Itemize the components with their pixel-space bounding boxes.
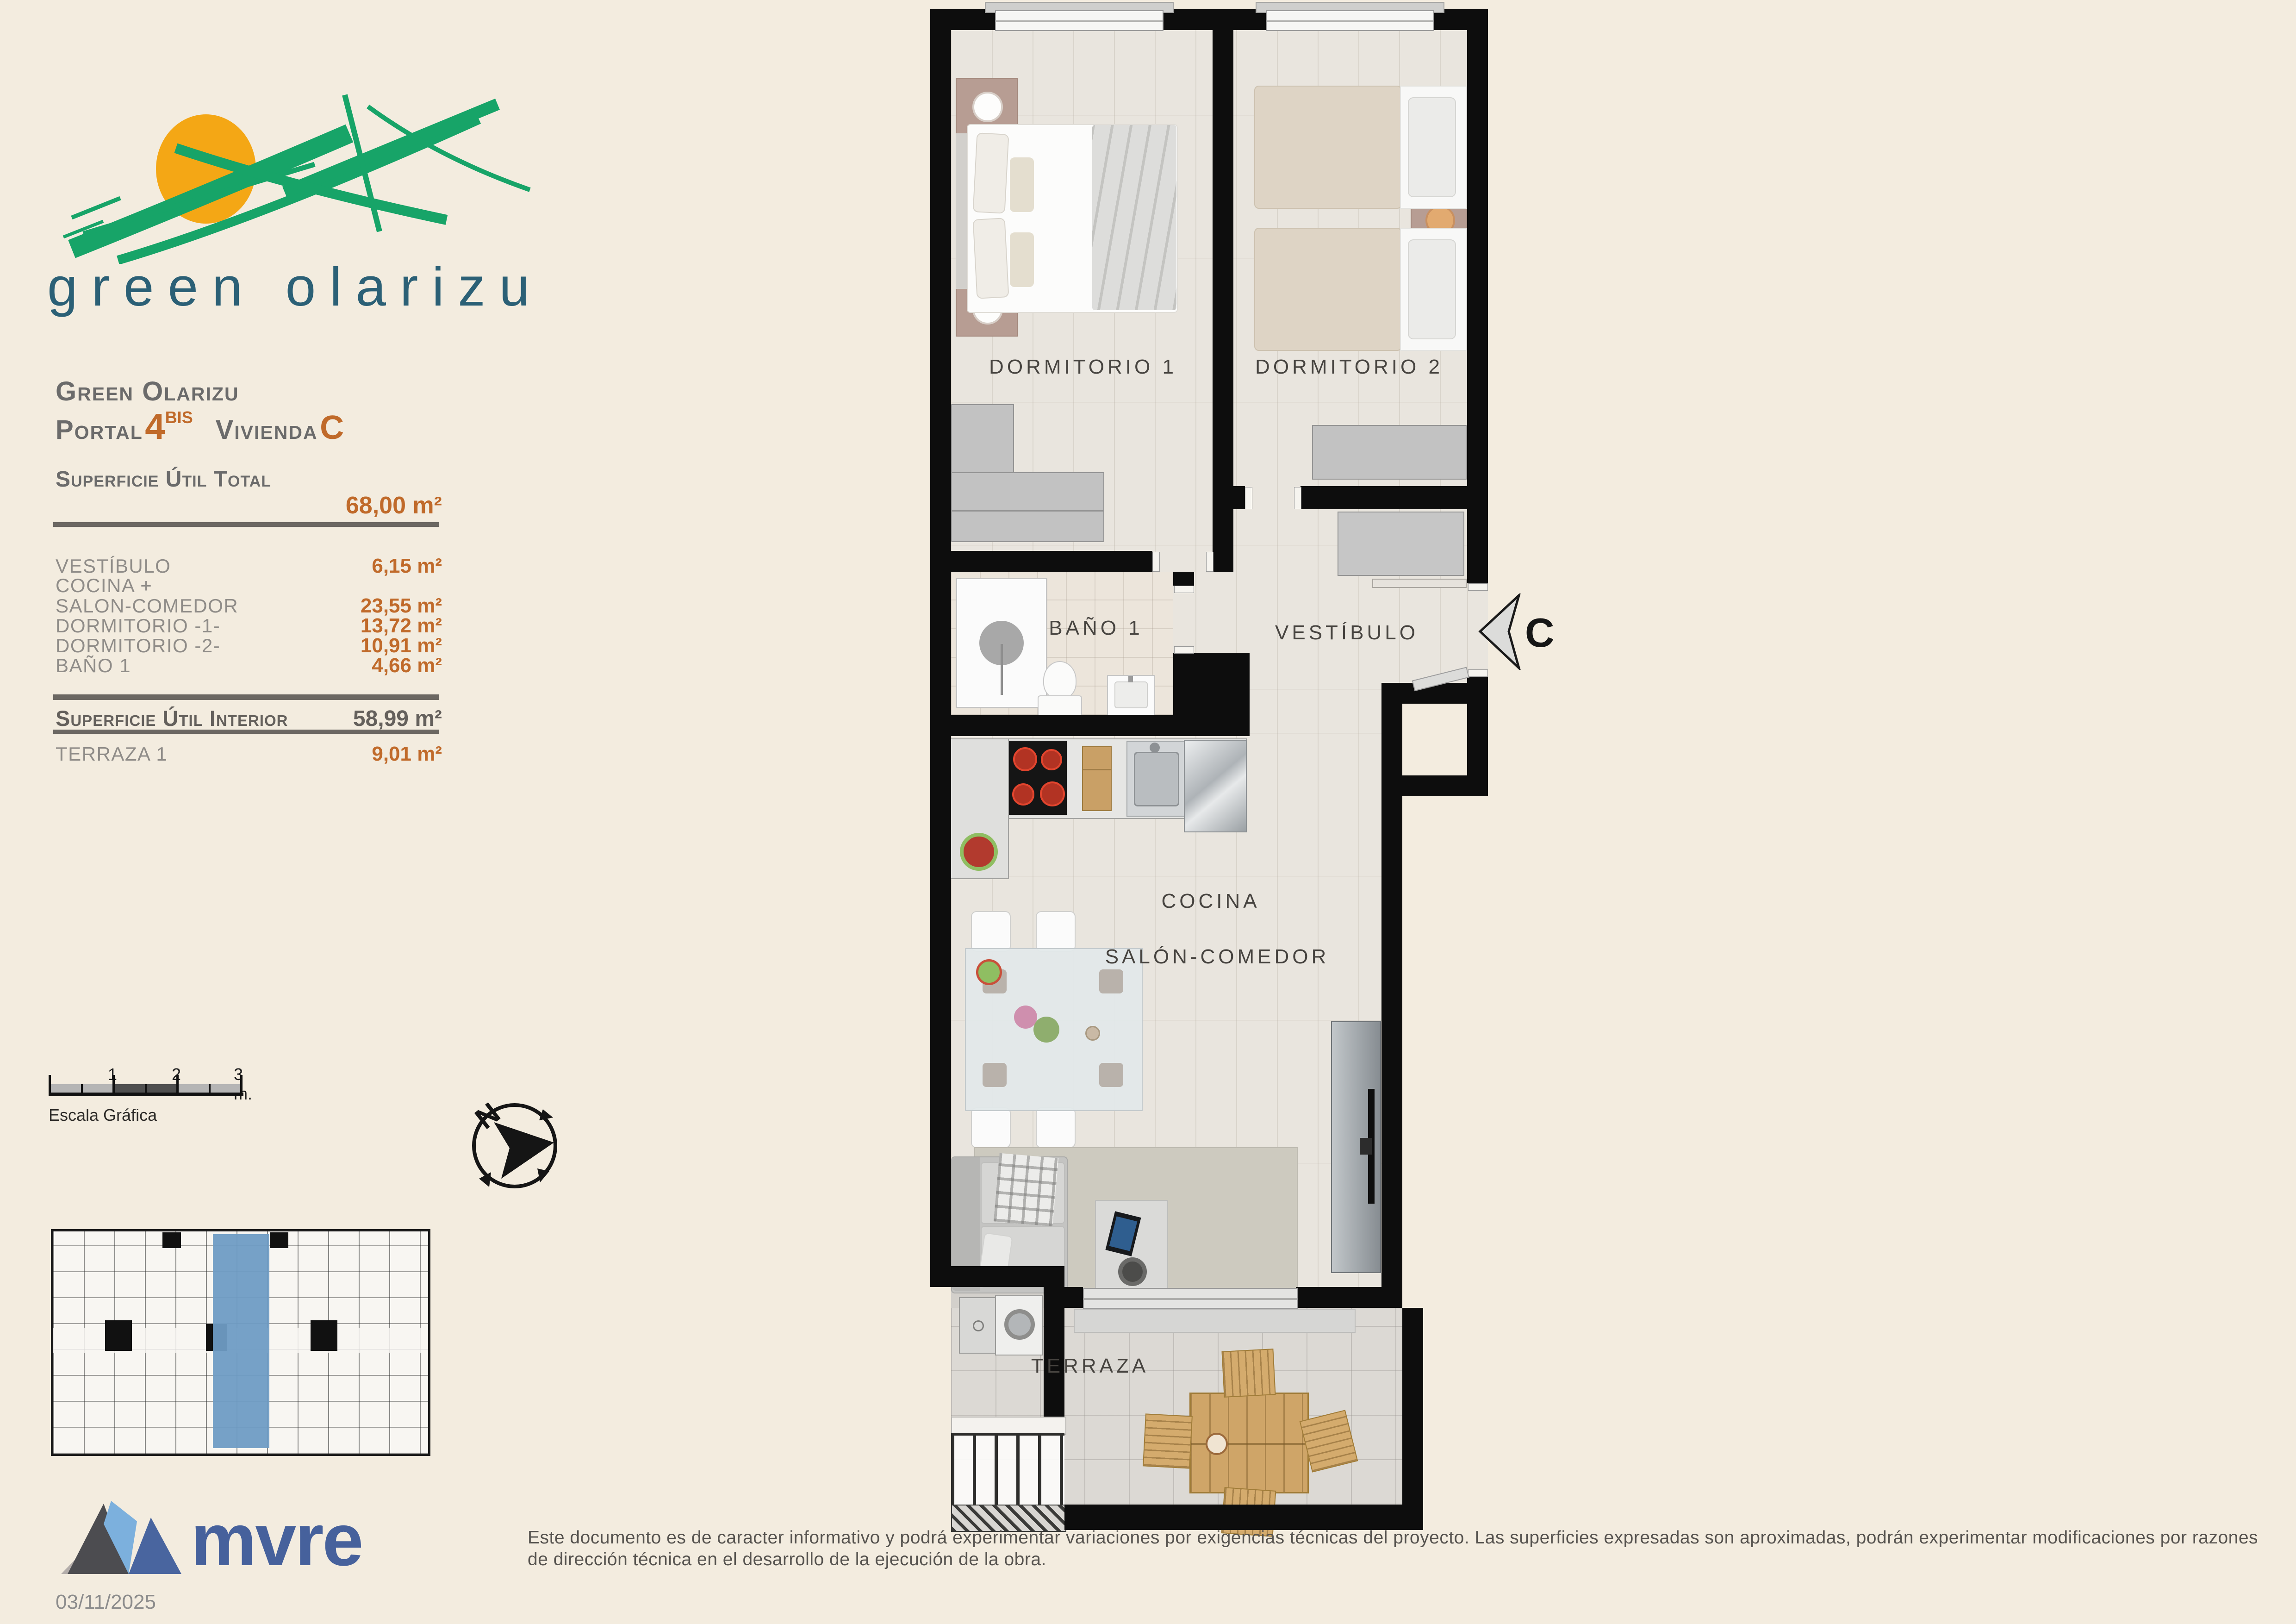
scale-tick [240, 1075, 243, 1093]
tablet [1105, 1211, 1141, 1256]
terrace-table [1189, 1393, 1309, 1493]
project-title: Green Olarizu [56, 376, 239, 407]
door-jamb [1245, 487, 1252, 509]
scale-midtick [81, 1084, 83, 1093]
room-label-bano: BAÑO 1 [1049, 617, 1143, 640]
area-row-value: 4,66 m² [372, 654, 442, 677]
bed-single [1254, 86, 1465, 207]
plaid-throw [994, 1153, 1058, 1227]
closet-vestibule [1338, 512, 1464, 576]
dining-chair [1036, 911, 1076, 952]
area-row-label: VESTÍBULO [56, 555, 171, 577]
sink-basin [1114, 681, 1148, 708]
shower [956, 578, 1047, 708]
dining-chair [971, 1107, 1011, 1148]
entry-door-jamb [1468, 583, 1488, 591]
total-area-value: 68,00 m² [56, 492, 442, 519]
floorplan-sheet: green olarizu Green Olarizu Portal 4BIS … [0, 0, 2296, 1624]
toilet-tank [1038, 695, 1082, 717]
scale-midtick [145, 1084, 147, 1093]
wall-bath-bottom [951, 715, 1173, 736]
dining-chair [971, 911, 1011, 952]
cutting-board [1082, 746, 1112, 811]
flowers [1033, 1017, 1059, 1043]
area-row-label: COCINA + [56, 575, 152, 597]
area-row: BAÑO 1 4,66 m² [56, 654, 442, 677]
terrace-chair [1221, 1349, 1276, 1398]
coffee-cup [1085, 1026, 1100, 1041]
fruit-plate [960, 833, 998, 871]
cooktop [1007, 741, 1067, 815]
mountain-blue [129, 1518, 181, 1574]
vivienda-letter: C [320, 409, 344, 446]
teacup [1206, 1433, 1228, 1455]
interior-area-label: Superficie Útil Interior [56, 706, 288, 731]
toilet [1038, 661, 1080, 716]
sink-faucet [1150, 743, 1160, 753]
wardrobe-dorm2 [1312, 425, 1467, 480]
wall-terrace-right [1402, 1308, 1423, 1530]
terrace-chair [1143, 1413, 1193, 1468]
room-label-terraza: TERRAZA [1031, 1355, 1149, 1378]
logo-wordmark: green olarizu [47, 256, 543, 319]
room-label-dormitorio2: DORMITORIO 2 [1255, 356, 1443, 379]
bed-duvet [1254, 86, 1402, 209]
room-label-salon: SALÓN-COMEDOR [1105, 945, 1330, 968]
portal-suffix: BIS [165, 408, 193, 427]
wardrobe-dorm1 [951, 404, 1014, 474]
wall-dorm2-bottom-b [1300, 486, 1467, 509]
terrace-area-value: 9,01 m² [372, 743, 442, 766]
place-setting [983, 1063, 1007, 1087]
wall-niche-top [930, 1266, 1064, 1287]
door-jamb [1294, 487, 1301, 509]
total-area-label: Superficie Útil Total [56, 467, 271, 492]
cushion [1010, 232, 1034, 287]
wall-bath-right-a [1173, 572, 1194, 586]
key-plan-core [162, 1232, 181, 1248]
wall-terrace-top-b [1296, 1287, 1402, 1308]
toilet-bowl [1043, 661, 1076, 699]
scale-baseline [49, 1093, 243, 1096]
dishwasher [1184, 740, 1247, 832]
compass: N [465, 1096, 565, 1196]
door-jamb [1174, 586, 1194, 593]
wall-jog [1402, 775, 1488, 796]
salad-plate [976, 959, 1002, 985]
area-row: COCINA + [56, 575, 442, 597]
terrace-area-row: TERRAZA 1 9,01 m² [56, 743, 442, 766]
tv-mount [1360, 1138, 1372, 1155]
door-jamb [1206, 552, 1213, 572]
rule-mid-1 [53, 694, 439, 700]
terrace-railing [951, 1433, 1064, 1509]
key-plan-highlighted-unit [213, 1234, 269, 1448]
floor-plan: DORMITORIO 1 DORMITORIO 2 BAÑO 1 VESTÍBU… [930, 9, 1488, 1532]
scale-caption: Escala Gráfica [49, 1106, 157, 1125]
burner [1012, 783, 1034, 806]
wall-salon-right [1381, 683, 1402, 1308]
cushion [1010, 157, 1034, 212]
area-row-label: SALON-COMEDOR [56, 595, 238, 617]
place-setting [1099, 969, 1123, 993]
place-setting [1099, 1063, 1123, 1087]
key-plan-core [105, 1320, 132, 1351]
key-plan-core [270, 1232, 288, 1248]
dining-chair [1036, 1107, 1076, 1148]
niche-lintel [951, 1417, 1066, 1435]
bathroom-sink [1107, 675, 1155, 716]
burner [1041, 749, 1062, 770]
pillow [973, 218, 1009, 299]
kitchen-cabinet-return [947, 738, 1009, 879]
pillow [1408, 239, 1456, 339]
mvre-logo-icon [59, 1499, 184, 1577]
laundry-cabinet [959, 1297, 996, 1354]
compass-spike-ne [539, 1109, 553, 1120]
cabinet-knob [973, 1320, 984, 1331]
bed-blanket [1092, 125, 1176, 310]
wall-core-mass [1194, 653, 1250, 736]
wardrobe-dorm1 [951, 472, 1104, 542]
interior-area-value: 58,99 m² [353, 706, 442, 731]
vivienda-label: Vivienda [216, 415, 318, 445]
bed-headboard [956, 133, 967, 289]
washing-machine [995, 1295, 1043, 1355]
wall-dorm1-bottom [951, 551, 1152, 572]
door-jamb [1152, 552, 1160, 572]
green-olarizu-logo-icon [44, 79, 548, 264]
coffee-table [1095, 1200, 1168, 1290]
kitchen-sink [1126, 741, 1185, 817]
shower-stem [1001, 644, 1003, 695]
area-row-label: BAÑO 1 [56, 655, 131, 677]
pillow [973, 132, 1009, 213]
interior-area-row: Superficie Útil Interior 58,99 m² [56, 706, 442, 731]
burner [1013, 747, 1037, 771]
portal-label: Portal [56, 415, 143, 445]
scale-midtick [209, 1084, 211, 1093]
wall-terrace-bottom [1064, 1505, 1423, 1530]
window-dorm1 [995, 10, 1164, 31]
lamp [972, 92, 1003, 122]
terrace-area-label: TERRAZA 1 [56, 743, 168, 765]
rule-mid-2 [53, 730, 439, 734]
door-jamb [1174, 646, 1194, 654]
entry-door-jamb [1468, 669, 1488, 677]
wall-niche-right [1044, 1287, 1064, 1417]
scale-bar: 1 2 3 m. Escala Gráfica [49, 1065, 261, 1130]
wall-right-upper [1467, 30, 1488, 583]
terrace-sill [1074, 1309, 1356, 1333]
portal-number: 4 [145, 406, 165, 447]
unit-letter-marker: C [1525, 609, 1555, 656]
dining-table [965, 948, 1143, 1111]
sink-faucet [1128, 676, 1133, 682]
closet-sill [1372, 579, 1467, 588]
key-plan-core [311, 1320, 337, 1351]
disclaimer: Este documento es de caracter informativ… [528, 1527, 2261, 1570]
decor-bowl [1118, 1257, 1147, 1286]
entrance-chevron-icon [1476, 593, 1523, 670]
area-row-label: DORMITORIO -2- [56, 635, 220, 657]
wall-bedroom-divider [1213, 30, 1233, 572]
bed-single [1254, 228, 1465, 349]
sink-basin [1134, 752, 1179, 806]
wall-left [930, 30, 951, 1266]
portal-vivienda-line: Portal 4BIS Vivienda C [56, 406, 344, 448]
room-label-cocina: COCINA [1161, 890, 1260, 913]
room-label-dormitorio1: DORMITORIO 1 [989, 356, 1177, 379]
room-label-vestibulo: VESTÍBULO [1275, 621, 1419, 644]
tablet-screen [1109, 1216, 1138, 1251]
window-dorm2 [1266, 10, 1434, 31]
rule-top [53, 522, 439, 527]
key-plan [51, 1229, 430, 1456]
mvre-wordmark: mvre [191, 1497, 362, 1582]
date: 03/11/2025 [56, 1591, 156, 1614]
wall-bath-right-b [1173, 653, 1194, 736]
burner [1040, 781, 1065, 806]
area-row-label: DORMITORIO -1- [56, 615, 220, 637]
terrace-slider-door [1083, 1288, 1298, 1309]
bed-duvet [1254, 228, 1402, 351]
wall-dorm2-bottom-a [1233, 486, 1245, 509]
washer-door [1004, 1309, 1035, 1340]
pillow [1408, 97, 1456, 197]
